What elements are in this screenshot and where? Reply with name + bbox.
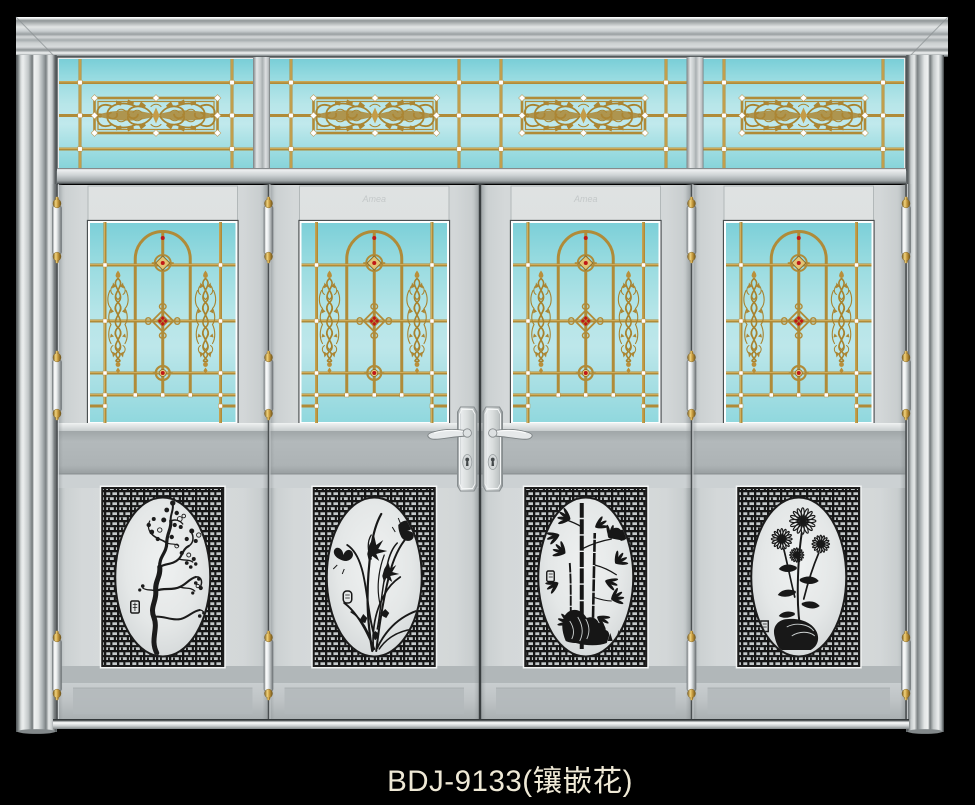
svg-text:Amea: Amea — [573, 194, 598, 204]
svg-text:BDJ-9133(镶嵌花): BDJ-9133(镶嵌花) — [387, 765, 633, 798]
svg-text:Amea: Amea — [361, 194, 386, 204]
